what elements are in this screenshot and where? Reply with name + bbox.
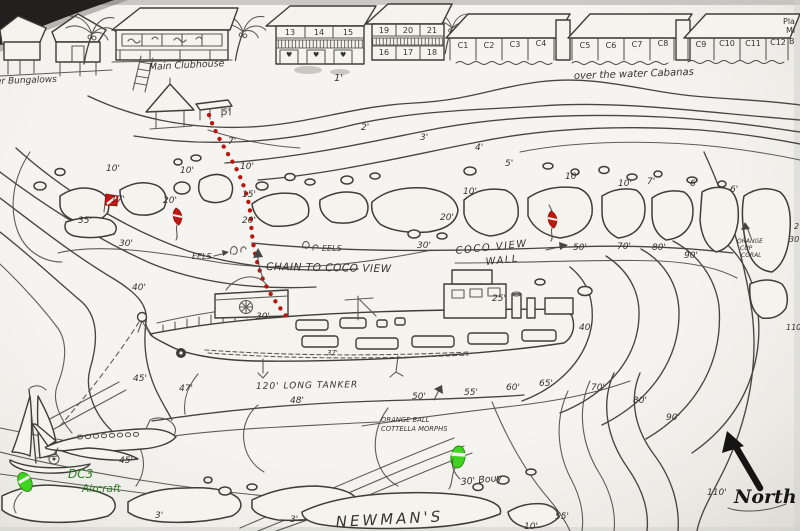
depth-label: 55' — [464, 388, 478, 398]
depth-label: 15' — [242, 190, 256, 200]
depth-label: 45' — [133, 374, 147, 384]
cabana-number: C12 — [770, 38, 786, 47]
sailboat — [10, 386, 90, 473]
unit-number: 13 — [285, 28, 295, 37]
photo-shadows — [0, 0, 800, 531]
depth-label: 10' — [180, 166, 194, 176]
unit-number: 19 — [379, 26, 389, 35]
depth-label: 2' — [361, 123, 369, 133]
depth-label: 80' — [652, 243, 666, 253]
feature-label: ♥ — [313, 51, 319, 59]
cabana-number: C4 — [536, 39, 547, 48]
depth-label: 30' — [256, 312, 270, 322]
depth-label: 3' — [155, 511, 163, 521]
unit-number: 16 — [379, 48, 389, 57]
depth-label: 10' — [106, 164, 120, 174]
cabana-number: C8 — [658, 39, 669, 48]
bouy-label: 30' Bouy — [460, 473, 503, 488]
unit-number: 15 — [343, 28, 353, 37]
depth50-arrow-icon — [434, 385, 443, 394]
depth-label: 45' — [119, 456, 133, 466]
depth-label: 30' — [119, 239, 133, 249]
depth-label: 20' — [440, 213, 454, 223]
feature-label: COTTELLA MORPHS — [381, 425, 448, 433]
depth-label: 70' — [591, 383, 605, 393]
dc3-label-line2: Aircraft — [81, 483, 122, 495]
pier-gazebo — [146, 78, 194, 129]
wall-arrow-icon — [559, 242, 568, 250]
feature-label: ORANGE — [737, 238, 763, 245]
depth-label: 20' — [163, 196, 177, 206]
cabana-number: C6 — [606, 41, 617, 50]
cabana-number-labels: C1C2C3C4C5C6C7C8C9C10C11C12 — [458, 38, 786, 50]
dc3-label-line1: DC3 — [68, 467, 93, 481]
depth-label: 5' — [222, 108, 230, 118]
depth-label: 50' — [573, 243, 587, 253]
cabana-number: C11 — [745, 39, 761, 48]
wall-label-line2: WALL — [485, 254, 519, 268]
depth-label: 40' — [132, 283, 146, 293]
depth-label: 30' — [417, 241, 431, 251]
unit-building-13-15 — [266, 6, 376, 75]
corner-partial-label: Mi — [786, 26, 795, 35]
corner-partial-label: Pla — [783, 17, 795, 26]
depth-label: 10' — [565, 172, 579, 182]
map-canvas: er Bungalows Main Clubhouse over the wat… — [0, 0, 800, 531]
depth-label: 80' — [633, 396, 647, 406]
depth-label: 65' — [539, 379, 553, 389]
depth-label: 90' — [666, 413, 680, 423]
depth-label: 40' — [579, 323, 593, 333]
depth-label: 70' — [617, 242, 631, 252]
depth-label: 7' — [647, 177, 655, 187]
depth-label: 110' — [786, 323, 800, 332]
cabana-number: C2 — [484, 41, 495, 50]
depth-label: 10' — [463, 187, 477, 197]
tanker-label: 120' LONG TANKER — [256, 380, 358, 392]
feature-label: EELS — [322, 244, 342, 253]
cabanas-label: over the water Cabanas — [574, 67, 694, 82]
unit-number: 18 — [427, 48, 437, 57]
dc3-aircraft — [33, 418, 176, 464]
depth-label: 90' — [684, 251, 698, 261]
depth-label: 3' — [420, 133, 428, 143]
corner-partial-label: B — [789, 37, 795, 46]
depth-label: 30 — [789, 235, 799, 244]
depth-label: 25' — [492, 294, 506, 304]
unit-number: 14 — [314, 28, 324, 37]
depth-label: 1' — [334, 73, 343, 84]
main-clubhouse — [112, 8, 238, 62]
chain-label: CHAIN TO COCO VIEW — [266, 261, 392, 275]
depth-label: 5' — [505, 159, 513, 169]
depth-label: 17' — [111, 195, 125, 205]
mooring-lines — [58, 313, 152, 429]
feature-label: ♥ — [340, 51, 346, 59]
unit-number: 21 — [427, 26, 437, 35]
depth-label: 10' — [618, 179, 632, 189]
depth-label: 110' — [707, 488, 727, 498]
depth-label: 48' — [290, 396, 304, 406]
depth-label: 3' — [290, 515, 298, 525]
depth-label: 2 — [794, 222, 799, 231]
bungalows-label: er Bungalows — [0, 75, 57, 87]
cabana-number: C9 — [696, 40, 707, 49]
depth-label: 6' — [730, 185, 738, 195]
cabana-number: C1 — [458, 41, 469, 50]
feature-label: ORANGE BALL — [381, 416, 430, 424]
unit-number: 17 — [403, 48, 413, 57]
depth-label: 55' — [555, 512, 569, 522]
eels-arrow-icon — [222, 250, 229, 256]
cabana-number: C3 — [510, 40, 521, 49]
depth-label: 4' — [475, 143, 483, 153]
red-buoy-icon — [173, 208, 182, 240]
cabana-number: C7 — [632, 40, 643, 49]
depth-label: 47' — [179, 384, 193, 394]
feature-label: ♥ — [286, 51, 292, 59]
feature-label: CORAL — [741, 252, 762, 259]
feature-label: EELS — [192, 252, 212, 261]
tanker-wreck — [150, 270, 574, 378]
cabana-number: C5 — [580, 41, 591, 50]
feature-labels: EELSEELSORANGECUPCORALORANGE BALLCOTTELL… — [192, 51, 763, 433]
depth-label: 50' — [412, 392, 426, 402]
depth-label: 7' — [228, 137, 236, 147]
dive-site-map: er Bungalows Main Clubhouse over the wat… — [0, 0, 800, 531]
depth-label: 35' — [78, 216, 92, 226]
unit-number: 20 — [403, 26, 413, 35]
depth-label: 37' — [327, 349, 338, 357]
feature-label: CUP — [740, 245, 753, 252]
depth-label: 6' — [690, 179, 698, 189]
depth-label: 10' — [524, 522, 538, 531]
cabana-number: C10 — [719, 39, 735, 48]
depth-label: 10' — [240, 162, 254, 172]
depth-label: 20' — [242, 216, 256, 226]
north-label: North — [733, 486, 797, 508]
depth-label: 60' — [506, 383, 520, 393]
